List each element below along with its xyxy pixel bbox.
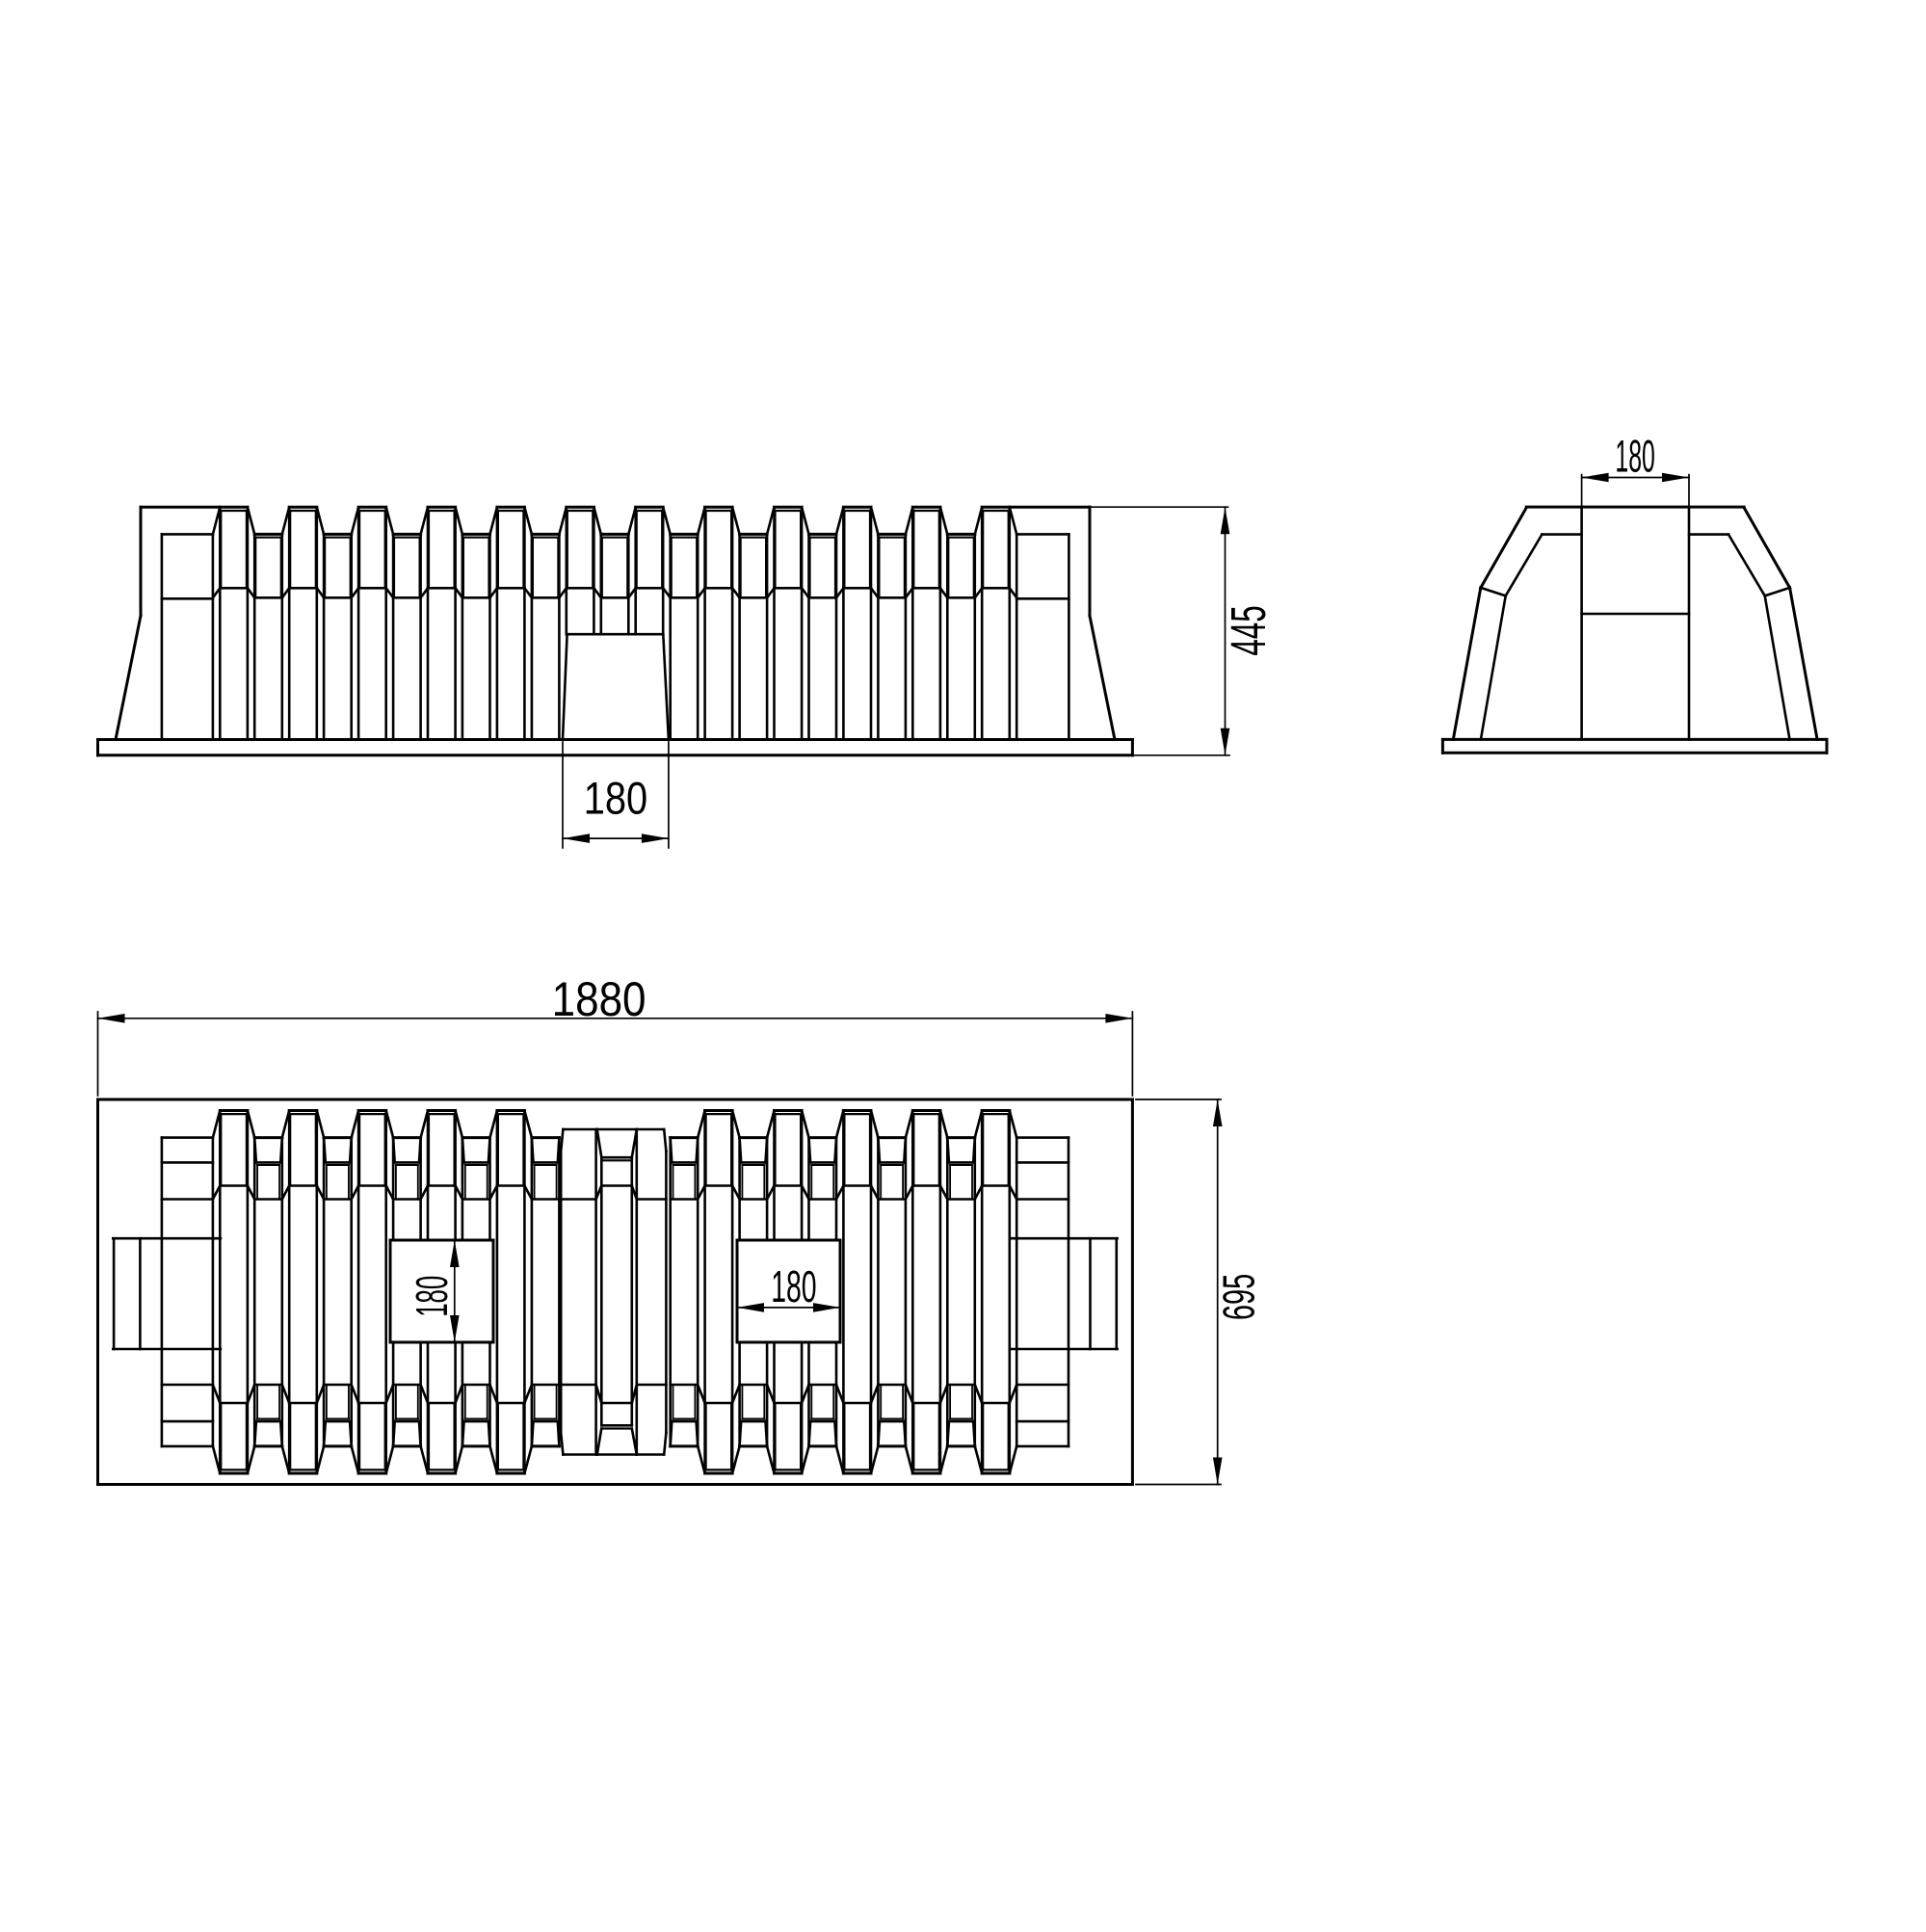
- svg-text:1880: 1880: [552, 971, 646, 1026]
- svg-text:695: 695: [1214, 1274, 1264, 1320]
- svg-text:445: 445: [1221, 605, 1276, 655]
- svg-text:180: 180: [407, 1276, 457, 1317]
- svg-text:180: 180: [1615, 431, 1654, 482]
- svg-text:180: 180: [584, 773, 647, 824]
- svg-text:180: 180: [771, 1261, 816, 1311]
